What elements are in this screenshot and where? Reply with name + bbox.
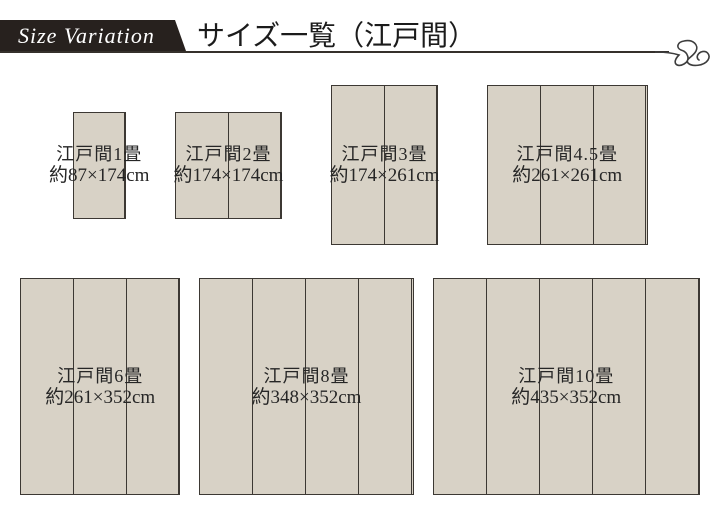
mat-dimensions: 約261×352cm <box>45 387 155 409</box>
mat-name: 江戸間1畳 <box>49 143 149 165</box>
mat-dimensions: 約261×261cm <box>512 165 622 187</box>
mat-label: 江戸間8畳約348×352cm <box>252 365 362 409</box>
page-title: サイズ一覧（江戸間） <box>197 21 476 52</box>
ribbon-label: Size Variation <box>18 23 155 49</box>
mat-row-2: 江戸間6畳約261×352cm江戸間8畳約348×352cm江戸間10畳約435… <box>0 278 720 495</box>
mat-dimensions: 約87×174cm <box>49 165 149 187</box>
mat-diagram: 江戸間8畳約348×352cm <box>199 278 413 494</box>
mat-label: 江戸間10畳約435×352cm <box>511 365 621 409</box>
tatami-panel <box>434 279 487 493</box>
tatami-panel <box>646 279 699 493</box>
mat-name: 江戸間3畳 <box>330 143 440 165</box>
mat-name: 江戸間8畳 <box>252 365 362 387</box>
mat-diagram: 江戸間1畳約87×174cm <box>73 112 127 219</box>
mat-diagram: 江戸間10畳約435×352cm <box>433 278 701 494</box>
mat-label: 江戸間6畳約261×352cm <box>45 365 155 409</box>
tatami-panel <box>200 279 253 493</box>
size-variation-infographic: Size Variation サイズ一覧（江戸間） 江戸間1畳約87×174cm… <box>0 0 720 522</box>
mat-diagram: 江戸間2畳約174×174cm <box>175 112 282 219</box>
mat-diagram: 江戸間4.5畳約261×261cm <box>487 85 648 246</box>
mat-dimensions: 約435×352cm <box>511 387 621 409</box>
mat-dimensions: 約348×352cm <box>252 387 362 409</box>
header-underline <box>0 51 669 53</box>
mat-diagram: 江戸間3畳約174×261cm <box>331 85 438 246</box>
mat-label: 江戸間1畳約87×174cm <box>49 143 149 187</box>
mat-dimensions: 約174×261cm <box>330 165 440 187</box>
flourish-icon <box>655 37 717 71</box>
mat-dimensions: 約174×174cm <box>174 165 284 187</box>
size-variation-ribbon: Size Variation <box>0 20 186 51</box>
mat-label: 江戸間2畳約174×174cm <box>174 143 284 187</box>
mat-diagram: 江戸間6畳約261×352cm <box>20 278 181 494</box>
mat-name: 江戸間10畳 <box>511 365 621 387</box>
mat-name: 江戸間2畳 <box>174 143 284 165</box>
mat-label: 江戸間4.5畳約261×261cm <box>512 143 622 187</box>
mat-name: 江戸間4.5畳 <box>512 143 622 165</box>
mat-label: 江戸間3畳約174×261cm <box>330 143 440 187</box>
mat-name: 江戸間6畳 <box>45 365 155 387</box>
tatami-panel <box>359 279 412 493</box>
mat-row-1: 江戸間1畳約87×174cm江戸間2畳約174×174cm江戸間3畳約174×2… <box>0 84 720 246</box>
